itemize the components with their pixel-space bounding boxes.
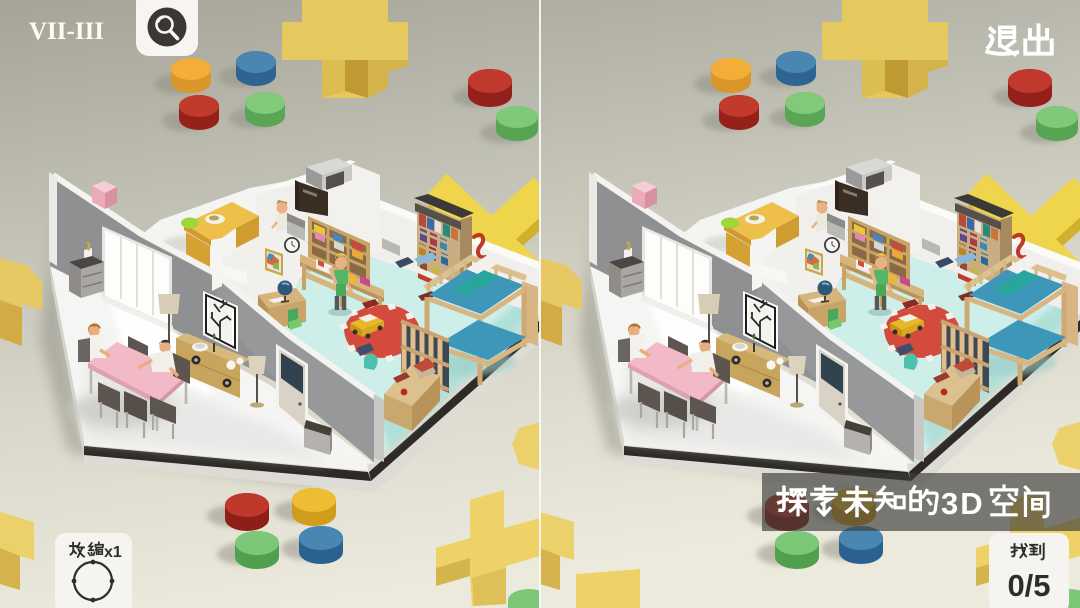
svg-text:x1: x1 [104,544,122,561]
svg-text:3D: 3D [941,486,985,521]
svg-text:0/5: 0/5 [1007,568,1050,603]
svg-text:VII-III: VII-III [29,18,104,45]
